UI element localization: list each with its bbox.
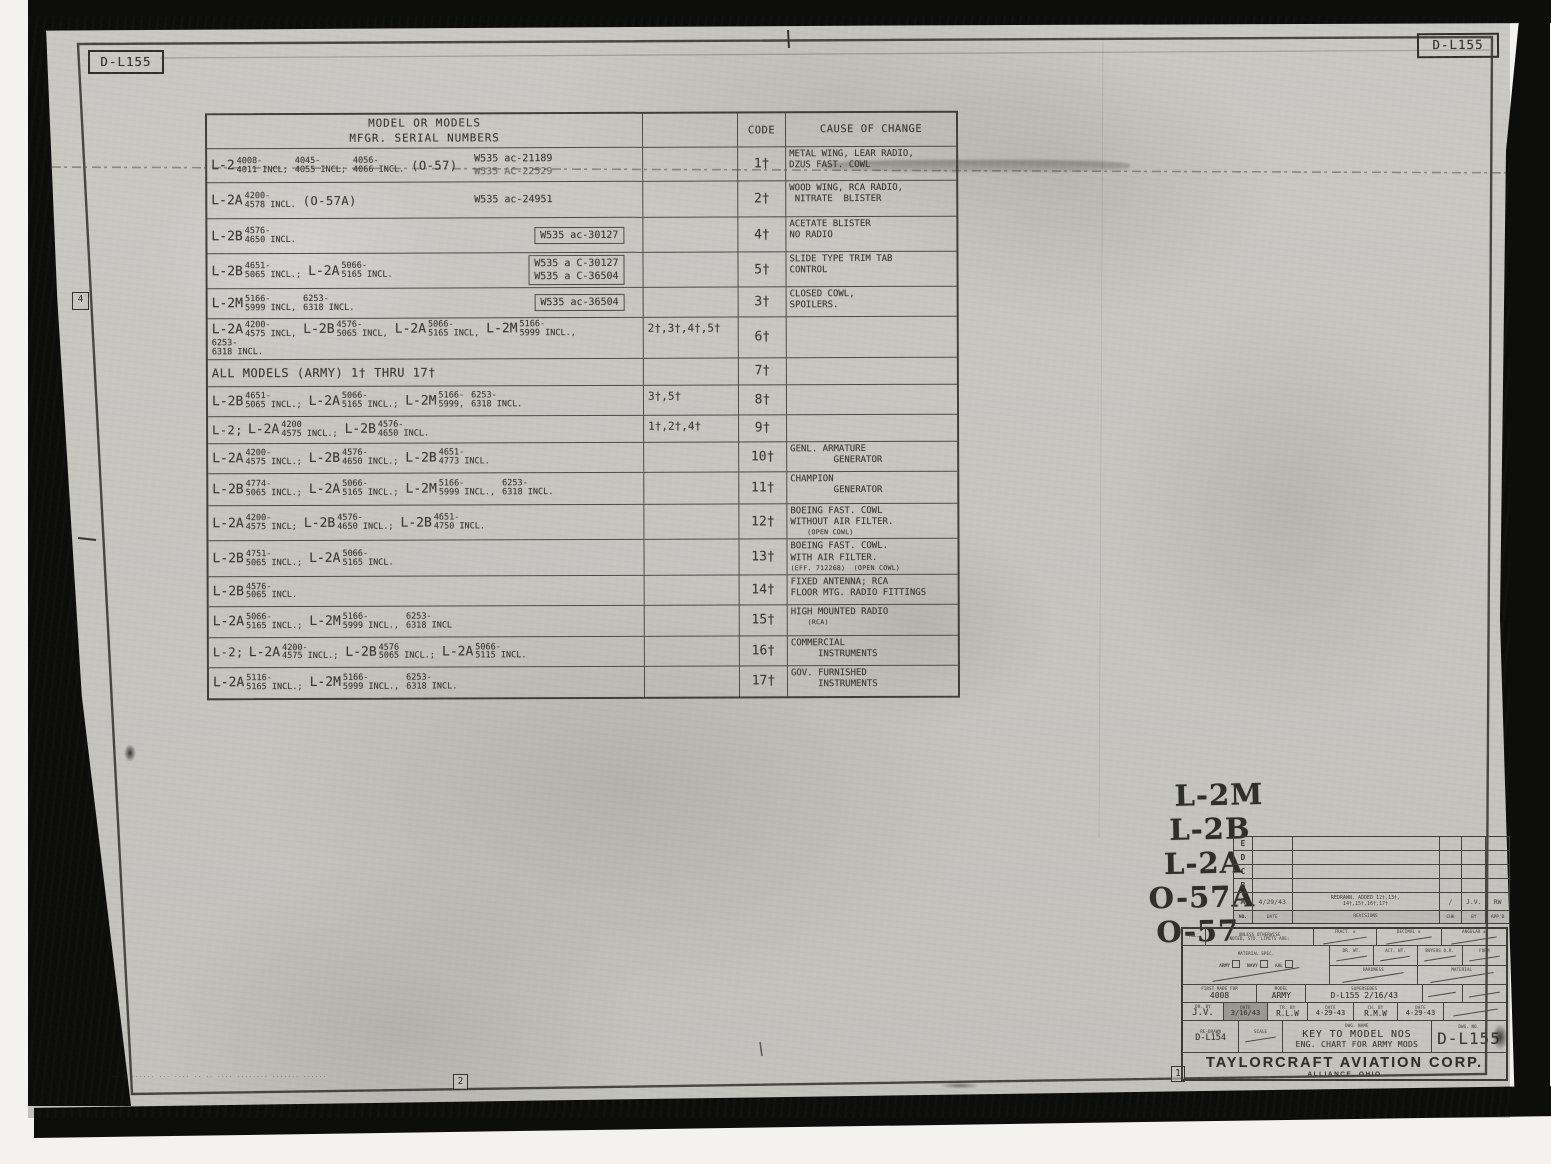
models-cell: L-2A4200-4575 INCL;L-2B4576-4650 INCL.;L… [208,504,643,540]
extra-codes-cell [643,358,738,384]
serial-range: 4200-4578 INCL. [245,192,296,210]
model-name: L-2M [309,614,340,629]
contract-numbers: W535 ac-21189W535 AC-22529 [474,151,632,178]
cause-line: FIXED ANTENNA; RCA [791,577,955,589]
blank-slash [1213,967,1300,982]
serial-range: 5166-5999 INCL., [343,613,399,631]
revision-date: 4/29/43 [1252,893,1292,910]
models-cell: L-2A4200-4578 INCL.(O-57A)W535 ac-24951 [207,182,642,219]
revision-approved [1485,865,1509,878]
model-name: L-2B [213,551,244,566]
models-cell: L-2A5116-5165 INCL.;L-2M5166-5999 INCL.,… [209,667,644,699]
models-cell: L-2A4200-4575 INCL,L-2B4576-5065 INCL,L-… [208,318,643,359]
model-label: MODEL [1257,987,1305,991]
models-cell: L-2;L-2A4200-4575 INCL.;L-2B45765065 INC… [209,637,644,668]
serial-range: 45765065 INCL.; [379,643,435,661]
serial-range-end: 4575 INCL.; [282,652,338,661]
blank-slash [1424,955,1456,961]
serial-range: 6253-6318 INCL. [502,479,553,497]
extra-codes-cell [642,147,737,180]
serial-range: 4651-4773 INCL. [439,449,490,467]
table-row: L-2A4200-4578 INCL.(O-57A)W535 ac-249512… [207,180,956,219]
table-row: L-2A5066-5165 INCL.;L-2M5166-5999 INCL.,… [209,604,958,638]
serial-range-end: 6318 INCL [406,621,452,630]
revision-by [1461,865,1485,878]
serial-range: 5066-5115 INCL. [475,643,526,661]
cause-line: SLIDE TYPE TRIM TAB [789,254,953,266]
models-cell: L-2A4200-4575 INCL.;L-2B4576-4650 INCL.;… [208,442,643,473]
checked-date-value: 4-29-43 [1406,1010,1436,1017]
cause-line: GOV. FURNISHED [791,668,955,680]
printer-fine-print: ·· · ······ ··· ···· ·· ·· ···· ········… [112,1075,327,1080]
table-row: L-2M5166-5999 INCL,6253-6318 INCL.W535 a… [208,286,957,319]
cause-cell [786,414,957,441]
revision-symbol: A [1234,893,1252,910]
extra-codes-cell: 2†,3†,4†,5† [643,317,738,357]
serial-range-end: 4575 INCL; [246,523,297,532]
serial-range-end: 5999, [439,401,465,410]
cause-cell [786,357,957,384]
contract-number-line: W535 ac-24951 [474,193,632,207]
company-location: ALLIANCE, OHIO [1307,1071,1381,1078]
blank-slash [1245,1037,1275,1043]
model-name: L-2A [248,422,279,437]
revision-date [1252,879,1292,892]
aal-checkbox [1285,960,1293,968]
serial-range-end: 5999 INCL., [343,683,399,692]
revision-approved: RW [1485,893,1509,910]
cause-line: (OPEN COWL) [790,528,954,537]
code-cell: 16† [739,636,787,665]
code-cell: 13† [738,540,786,575]
model-serial-sequence: ALL MODELS (ARMY) 1† THRU 17† [212,364,639,379]
cause-line: GENERATOR [790,485,954,497]
serial-range: 6253-6318 INCL. [212,339,263,357]
model-name: L-2A [211,193,242,208]
cause-cell: SLIDE TYPE TRIM TABCONTROL [785,252,956,287]
revision-check [1439,865,1462,878]
serial-range-end: 5165 INCL.; [342,489,398,498]
cause-line: NO RADIO [789,230,953,242]
serial-range-end: 6318 INCL. [502,488,553,497]
revision-date [1252,837,1292,850]
serial-range-end: 6318 INCL. [303,303,354,312]
serial-range: 4200-4575 INCL, [245,321,296,339]
cause-line: WOOD WING, RCA RADIO, [789,183,953,195]
serial-range-end: 4773 INCL. [439,458,490,467]
code-cell: 4† [737,217,785,251]
code-cell: 17† [739,666,787,696]
model-name: L-2A [395,322,426,337]
contract-numbers: W535 ac-30127 [534,226,624,243]
form-label: FORM [1463,949,1506,953]
model-serial-sequence: L-2B4774-5065 INCL.;L-2A5066-5165 INCL.;… [212,479,639,498]
serial-range-end: 5065 INCL.; [246,559,302,568]
traced-date-value: 4-29-43 [1316,1010,1346,1017]
model-name: L-2M [405,393,436,408]
serial-range-end: 4650 INCL.; [342,458,398,467]
model-name: L-2 [211,158,235,173]
table-row: L-2B4651-5065 INCL.;L-2A5066-5165 INCL.W… [207,251,956,289]
cause-line: DZUS FAST. COWL [789,160,953,172]
zone-marker-bottom-center: 2 [453,1074,468,1090]
cause-line: CHAMPION [790,473,954,485]
revision-symbol-header: NO. [1234,911,1252,923]
serial-range-end: 5999 INCL., [343,622,399,631]
first-made-label: FIRST MADE FOR [1183,987,1256,991]
serial-range: 5166-5999 INCL, [245,295,296,313]
table-row: L-2A4200-4575 INCL,L-2B4576-5065 INCL,L-… [208,316,957,359]
model-name: L-2B [309,451,340,466]
models-cell: L-24008-4011 INCL;4045-4055 INCL;4056-40… [207,148,642,183]
company-name: TAYLORCRAFT AVIATION CORP. [1206,1055,1483,1071]
serial-range-end: 5115 INCL. [475,652,526,661]
scanned-drawing-sheet: D-L155 D-L155 4 2 1 MODEL OR MODELSMFGR.… [0,0,1551,1164]
code-cell: 10† [738,442,786,471]
extra-codes-cell [642,217,737,251]
revision-row: C [1234,864,1509,878]
code-cell: 3† [738,287,786,316]
serial-range: 4200-4575 INCL; [246,514,297,532]
table-row: L-2B4576-5065 INCL.14†FIXED ANTENNA; RCA… [209,574,958,607]
model-name: L-2B [212,482,243,497]
model-serial-sequence: L-2B4576-5065 INCL. [213,581,640,600]
serial-range-end: 6318 INCL. [471,400,522,409]
blank-slash [1336,956,1367,962]
cause-line: INSTRUMENTS [791,649,955,661]
revision-table: EDCBA4/29/43REDRAWN. ADDED 12†,13†,14†,1… [1233,836,1510,924]
model-name: L-2A [212,516,243,531]
serial-range: 4651-5065 INCL.; [245,262,301,280]
serial-range-end: 4650 INCL.; [337,523,393,532]
cause-line: INSTRUMENTS [791,679,955,691]
cause-cell: FIXED ANTENNA; RCAFLOOR MTG. RADIO FITTI… [787,575,958,605]
material-spec-label: MATERIAL SPEC. [1183,952,1329,956]
serial-range: 4576-5065 INCL, [337,321,388,339]
revision-description [1292,879,1439,892]
cause-line: (EFF. 712268) (OPEN COWL) [791,564,955,573]
model-serial-sequence: L-2A4200-4575 INCL.;L-2B4576-4650 INCL.;… [212,448,639,467]
extra-codes-cell [643,472,738,503]
revision-check: / [1439,893,1462,910]
extra-codes-cell [642,181,737,216]
drawn-by-value: J.V. [1192,1009,1214,1018]
models-cell: L-2M5166-5999 INCL,6253-6318 INCL.W535 a… [208,288,643,319]
serial-range: 5116-5165 INCL.; [246,674,302,692]
model-name: L-2M [212,296,243,311]
revision-description-line: 14†,15†,16†,17† [1343,902,1388,908]
revision-by [1461,851,1485,864]
serial-range: 4576-5065 INCL. [246,583,297,601]
serial-range: 5166-5999 INCL., [520,320,576,338]
contract-number-line: W535 AC-22529 [474,164,632,178]
model-name: L-2A [309,482,340,497]
model-name: L-2A [212,323,243,338]
revision-date [1252,865,1292,878]
reference-drawing-number: D-L154 [1195,1034,1226,1043]
model-name: L-2B [405,450,436,465]
models-cell: L-2B4774-5065 INCL.;L-2A5066-5165 INCL.;… [208,472,643,505]
model-serial-sequence: L-24008-4011 INCL;4045-4055 INCL;4056-40… [211,156,474,175]
code-cell: 11† [738,472,786,503]
model-name: L-2A [213,615,244,630]
extra-codes-cell [644,575,739,604]
supersedes-value: D-L155 2/16/43 [1331,992,1398,1000]
serial-range-end: 4055 INCL; [295,165,346,174]
code-cell: 1† [737,147,785,180]
contract-numbers: W535 ac-36504 [534,294,624,311]
checked-by-value: R.M.W [1364,1010,1387,1018]
buyers-ok-label: BUYERS O.K. [1418,949,1462,953]
model-plain-text: L-2; [213,646,244,660]
serial-range-end: 5165 INCL.; [246,683,302,692]
cause-line: BOEING FAST. COWL [790,505,954,517]
cause-cell: BOEING FAST. COWLWITHOUT AIR FILTER. (OP… [786,503,957,538]
serial-range-end: 4011 INCL; [237,166,288,175]
revision-approved [1485,851,1509,864]
serial-range: 5066-5165 INCL.; [342,392,398,410]
serial-range: 4576-4650 INCL. [378,420,429,438]
drawn-by-label: DR. BY [1183,1005,1223,1009]
table-row: L-2;L-2A42004575 INCL.;L-2B4576-4650 INC… [208,413,957,443]
serial-range: 5066-5165 INCL.; [342,480,398,498]
code-cell: 8† [738,385,786,414]
angular-label: ANGULAR ± [1442,930,1506,934]
supersedes-label: SUPERSEDES [1306,987,1422,991]
model-name: L-2B [304,515,335,530]
army-checkbox [1232,960,1240,968]
model-name: L-2M [486,322,517,337]
revision-approved-header: APP'D [1485,911,1509,923]
serial-range: 6253-6318 INCL. [471,391,522,409]
table-row: L-2;L-2A4200-4575 INCL.;L-2B45765065 INC… [209,635,958,668]
serial-range: 4200-4575 INCL.; [282,643,338,661]
serial-range-end: 5165 INCL. [341,271,392,280]
revision-symbol: E [1234,837,1252,850]
table-row: ALL MODELS (ARMY) 1† THRU 17†7† [208,356,957,386]
extra-codes-cell: 3†,5† [643,385,738,414]
extra-codes-cell [644,666,739,696]
cause-cell: METAL WING, LEAR RADIO,DZUS FAST. COWL [785,147,956,181]
model-name: L-2A [249,645,280,660]
models-cell: L-2;L-2A42004575 INCL.;L-2B4576-4650 INC… [208,415,643,443]
model-name: L-2B [212,264,243,279]
blank-slash [1386,936,1432,944]
title-block: TOL. UNLESS OTHERWISE NOTED, STD. LIMITS… [1181,927,1508,1081]
model-plain-text: ALL MODELS (ARMY) 1† THRU 17† [212,365,436,380]
scale-label: SCALE [1239,1030,1281,1034]
blank-slash [1469,956,1500,962]
serial-range: 6253-6318 INCL. [303,294,354,312]
model-serial-sequence: L-2;L-2A42004575 INCL.;L-2B4576-4650 INC… [212,420,639,439]
serial-range: 4045-4055 INCL; [295,156,346,174]
models-cell: L-2A5066-5165 INCL.;L-2M5166-5999 INCL.,… [209,606,644,638]
serial-range-end: 5165 INCL.; [342,401,398,410]
revision-row: D [1234,850,1509,864]
cause-line: NITRATE BLISTER [789,194,953,206]
cause-cell [786,317,957,357]
extra-codes-cell [643,540,738,575]
serial-range: 4576-4650 INCL.; [342,449,398,467]
revision-row: E [1234,837,1509,850]
extra-codes-cell [644,636,739,665]
cause-line: BOEING FAST. COWL. [790,541,954,553]
tolerance-label: TOL. [1188,935,1199,940]
serial-range-end: 5065 INCL.; [379,652,435,661]
model-serial-sequence: L-2M5166-5999 INCL,6253-6318 INCL. [212,294,535,313]
revision-row: A4/29/43REDRAWN. ADDED 12†,13†,14†,15†,1… [1234,892,1509,910]
code-cell: 7† [738,358,786,384]
revision-check [1439,851,1462,864]
serial-range-end: 4750 INCL. [434,522,485,531]
serial-range: 5066-5165 INCL. [342,549,393,567]
model-plain-text: (O-57A) [303,193,357,207]
cause-line: GENERATOR [790,455,954,467]
revision-approved [1485,879,1509,892]
drawing-number-label-top-right: D-L155 [1417,33,1499,59]
model-name: L-2B [303,322,334,337]
revision-by [1461,837,1485,850]
code-cell: 14† [739,575,787,604]
model-name: L-2B [213,584,244,599]
revision-description [1292,851,1439,864]
serial-range-end: 6318 INCL. [406,682,457,691]
cause-cell [786,384,957,414]
serial-range-end: 5165 INCL.; [246,622,302,631]
revision-description [1292,865,1439,878]
models-header-line2: MFGR. SERIAL NUMBERS [349,131,500,146]
serial-range: 6253-6318 INCL [406,612,452,630]
model-name: L-2M [405,481,436,496]
models-cell: L-2B4751-5065 INCL.;L-2A5066-5165 INCL. [208,540,643,576]
serial-range: 4774-5065 INCL.; [246,480,302,498]
model-name: L-2A [308,263,339,278]
table-row: L-2A4200-4575 INCL;L-2B4576-4650 INCL.;L… [208,502,957,540]
model-name: L-2B [212,394,243,409]
model-name: L-2A [212,451,243,466]
zone-marker-left: 4 [72,292,89,310]
serial-range: 4751-5065 INCL.; [246,550,302,568]
table-row: L-2B4651-5065 INCL.;L-2A5066-5165 INCL.;… [208,383,957,416]
model-serial-sequence: L-2A4200-4575 INCL;L-2B4576-4650 INCL.;L… [212,513,639,532]
revision-symbol: C [1234,865,1252,878]
table-row: L-2B4751-5065 INCL.;L-2A5066-5165 INCL.1… [208,538,957,576]
act-wt-label: ACT. WT. [1374,949,1416,953]
cause-cell: GENL. ARMATURE GENERATOR [786,441,957,471]
serial-range: 5166-5999, [438,392,464,410]
serial-range-end: 5065 INCL. [246,591,297,600]
model-name: L-2A [213,676,244,691]
table-row: L-2A5116-5165 INCL.;L-2M5166-5999 INCL.,… [209,665,958,699]
contract-number-line: W535 a C-36504 [534,270,618,283]
table-row: L-2B4576-4650 INCL.W535 ac-301274†ACETAT… [207,216,956,254]
checked-by-label: CH. BY [1354,1006,1397,1010]
code-header-cell: CODE [737,113,785,146]
revision-row: B [1234,878,1509,892]
code-cell: 9† [738,415,786,441]
drawing-number-value: D-L155 [1437,1029,1501,1048]
revision-approved [1485,837,1509,850]
serial-range-end: 4650 INCL. [245,236,296,245]
models-cell: ALL MODELS (ARMY) 1† THRU 17† [208,358,643,386]
cause-line: HIGH MOUNTED RADIO [791,607,955,619]
blank-slash [1343,973,1405,984]
serial-range-end: 4578 INCL. [245,200,296,209]
drawn-date-label: DATE [1224,1006,1267,1010]
serial-range: 5166-5999 INCL., [439,480,495,498]
serial-range-end: 5165 INCL. [342,558,393,567]
code-cell: 5† [737,252,785,286]
revision-by [1461,879,1485,892]
serial-range-end: 5999 INCL, [245,303,296,312]
serial-range-end: 5999 INCL., [520,329,576,338]
models-header-cell: MODEL OR MODELSMFGR. SERIAL NUMBERS [207,114,642,149]
cause-line: GENL. ARMATURE [790,443,954,455]
cause-cell: WOOD WING, RCA RADIO, NITRATE BLISTER [785,181,956,217]
cause-header-cell: CAUSE OF CHANGE [785,113,956,147]
serial-range-end: 4650 INCL. [378,429,429,438]
model-plain-text: L-2; [212,423,243,437]
model-serial-sequence: L-2B4651-5065 INCL.;L-2A5066-5165 INCL. [211,261,528,280]
cause-line: METAL WING, LEAR RADIO, [789,149,953,161]
cause-cell: CLOSED COWL,SPOILERS. [786,287,957,317]
model-name: L-2B [400,515,431,530]
model-name: L-2B [345,422,376,437]
tolerance-note-line2: NOTED, STD. LIMITS ARE: [1206,937,1314,941]
traced-by-label: TR. BY [1268,1006,1307,1010]
code-cell: 12† [738,504,786,539]
blank-slash [1430,972,1493,983]
cause-line: CLOSED COWL, [790,289,954,301]
decimal-label: DECIMAL ± [1377,930,1441,934]
serial-range: 5066-5165 INCL. [341,262,392,280]
contract-numbers: W535 ac-24951 [474,193,632,207]
serial-range: 6253-6318 INCL. [406,673,457,691]
serial-range: 4056-4066 INCL. [353,156,404,174]
blank-slash [1451,936,1497,944]
model-serial-sequence: L-2A5116-5165 INCL.;L-2M5166-5999 INCL.,… [213,673,640,692]
model-serial-sequence: L-2B4576-4650 INCL. [211,226,534,245]
serial-range-end: 4575 INCL.; [245,458,301,467]
model-name: L-2B [345,645,376,660]
serial-range-end: 4066 INCL. [353,165,404,174]
model-serial-sequence: L-2B4751-5065 INCL.;L-2A5066-5165 INCL. [213,549,640,568]
traced-date-label: DATE [1308,1006,1353,1010]
model-name: L-2M [310,675,341,690]
revision-description-header: REVISIONS [1292,911,1439,923]
drawn-date-value: 3/16/43 [1231,1010,1261,1017]
cause-cell: COMMERCIAL INSTRUMENTS [787,636,958,666]
blank-slash [1469,992,1500,998]
cause-line: COMMERCIAL [791,638,955,650]
models-cell: L-2B4651-5065 INCL.;L-2A5066-5165 INCL.W… [207,253,642,289]
models-cell: L-2B4576-5065 INCL. [209,576,644,607]
model-serial-sequence: L-2A4200-4578 INCL.(O-57A) [211,191,474,210]
table-row: L-24008-4011 INCL;4045-4055 INCL;4056-40… [207,146,956,183]
model-name: L-2A [442,644,473,659]
blank-slash [1323,936,1367,944]
model-value: ARMY [1272,992,1291,1000]
serial-range: 4651-4750 INCL. [434,513,485,531]
serial-range-end: 4575 INCL, [245,330,296,339]
serial-range: 4008-4011 INCL; [237,157,288,175]
model-serial-sequence: L-2A5066-5165 INCL.;L-2M5166-5999 INCL.,… [213,612,640,631]
table-row: L-2A4200-4575 INCL.;L-2B4576-4650 INCL.;… [208,440,957,473]
models-header-line1: MODEL OR MODELS [368,117,481,132]
drawing-title-line2: ENG. CHART FOR ARMY MODS [1295,1040,1418,1049]
model-plain-text: (O-57) [411,158,457,172]
cause-cell: HIGH MOUNTED RADIO (RCA) [787,605,958,636]
